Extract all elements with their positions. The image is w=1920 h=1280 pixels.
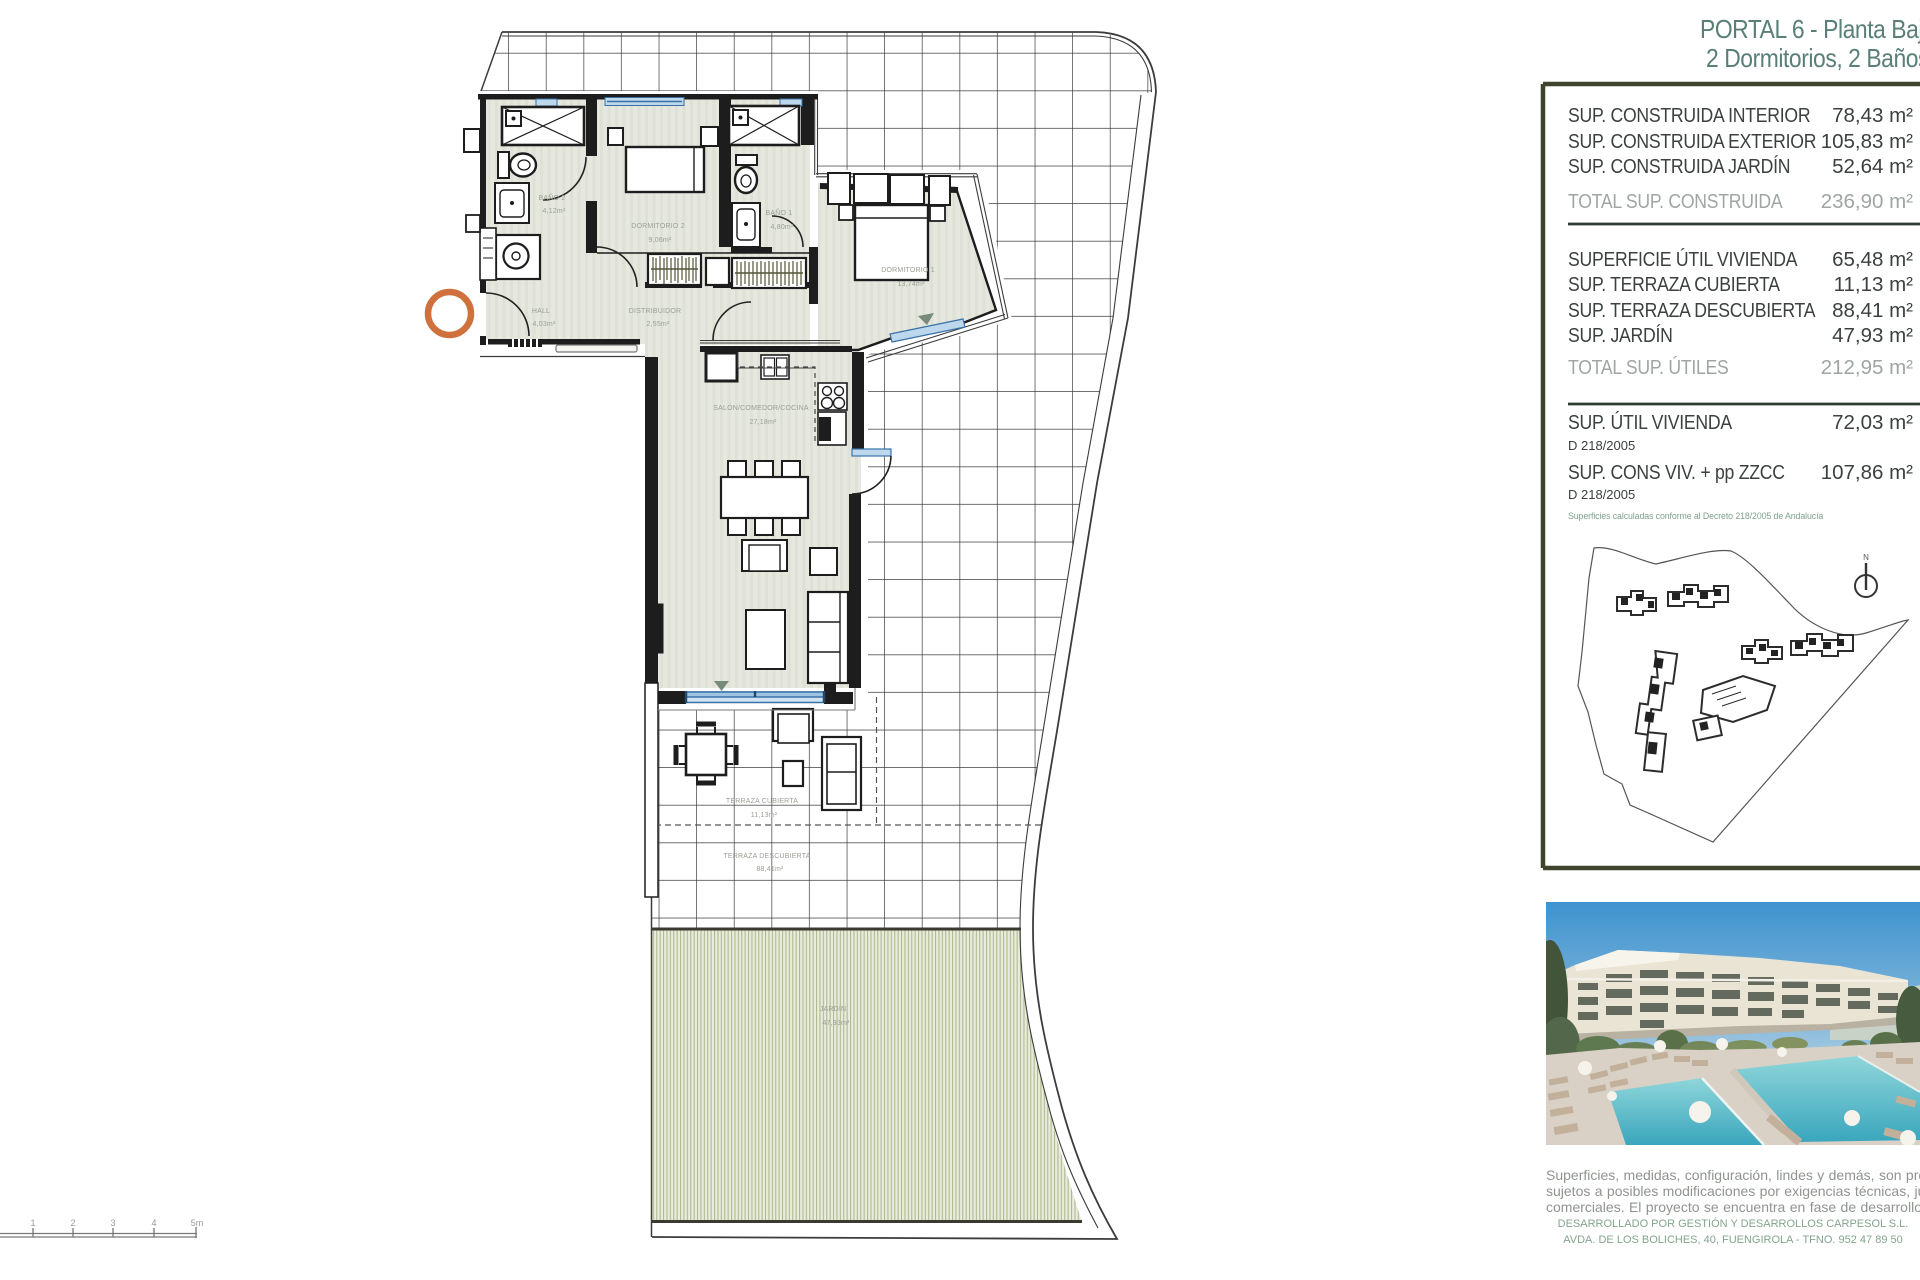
svg-text:BAÑO 2: BAÑO 2	[539, 193, 566, 202]
svg-text:3: 3	[110, 1218, 115, 1228]
svg-text:4: 4	[151, 1218, 156, 1228]
svg-text:N: N	[1863, 553, 1869, 562]
svg-text:4,80m²: 4,80m²	[771, 224, 794, 231]
svg-text:4,03m²: 4,03m²	[533, 321, 556, 328]
svg-text:88,41m²: 88,41m²	[756, 866, 784, 873]
svg-text:13,74m²: 13,74m²	[897, 281, 925, 288]
svg-text:HALL: HALL	[532, 308, 550, 315]
svg-text:4,12m²: 4,12m²	[543, 208, 566, 215]
svg-text:9,06m²: 9,06m²	[649, 237, 672, 244]
svg-text:5m: 5m	[191, 1218, 204, 1228]
svg-text:2: 2	[70, 1218, 75, 1228]
svg-text:SALÓN/COMEDOR/COCINA: SALÓN/COMEDOR/COCINA	[713, 403, 809, 412]
svg-text:DORMITORIO 1: DORMITORIO 1	[881, 267, 935, 274]
svg-text:DORMITORIO 2: DORMITORIO 2	[631, 223, 685, 230]
svg-text:JARDÍN: JARDÍN	[820, 1004, 846, 1013]
svg-text:DISTRIBUIDOR: DISTRIBUIDOR	[629, 308, 682, 315]
svg-text:TERRAZA DESCUBIERTA: TERRAZA DESCUBIERTA	[723, 853, 810, 860]
svg-text:27,18m²: 27,18m²	[749, 419, 777, 426]
svg-text:1: 1	[30, 1218, 35, 1228]
svg-text:11,13m²: 11,13m²	[751, 812, 778, 819]
svg-text:BAÑO 1: BAÑO 1	[766, 208, 793, 217]
svg-text:TERRAZA CUBIERTA: TERRAZA CUBIERTA	[726, 798, 798, 805]
svg-text:2,55m²: 2,55m²	[647, 321, 670, 328]
svg-text:47,93m²: 47,93m²	[822, 1020, 850, 1027]
